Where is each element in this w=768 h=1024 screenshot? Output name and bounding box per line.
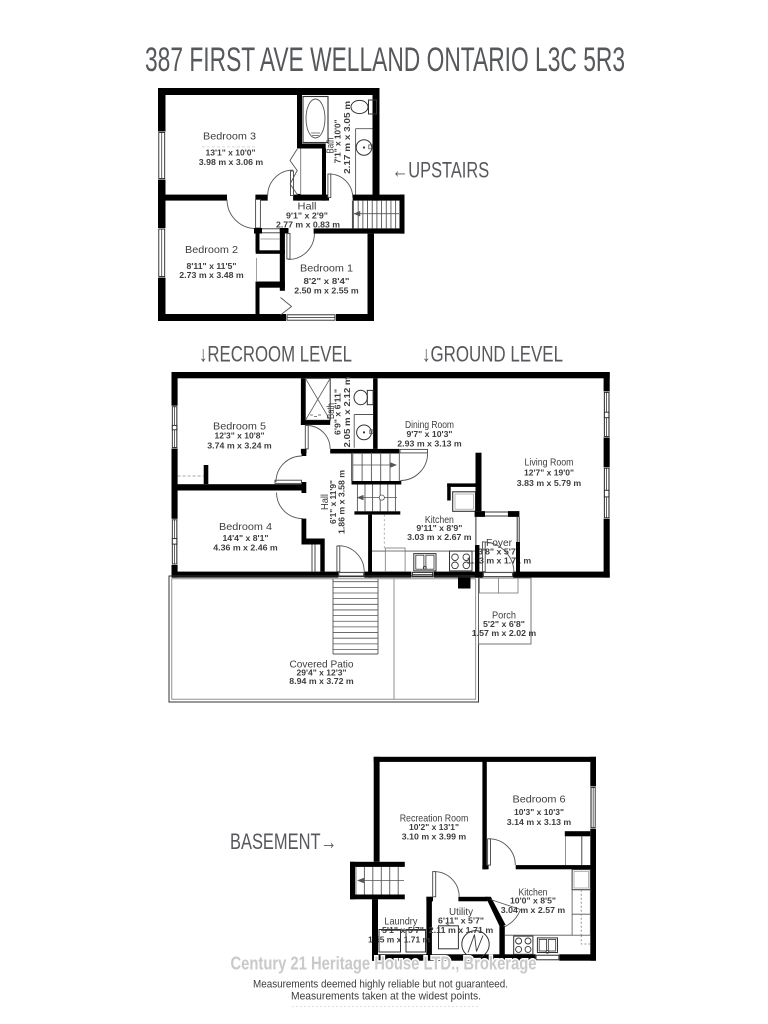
- svg-text:8'2" x 8'4": 8'2" x 8'4": [304, 276, 350, 286]
- svg-text:2.73 m x 3.48 m: 2.73 m x 3.48 m: [179, 270, 243, 280]
- svg-text:Bedroom 2: Bedroom 2: [185, 245, 238, 256]
- svg-text:↓RECROOM LEVEL: ↓RECROOM LEVEL: [199, 341, 352, 366]
- svg-text:3.10 m x 3.99 m: 3.10 m x 3.99 m: [402, 831, 466, 841]
- svg-text:1.86 m x 3.58 m: 1.86 m x 3.58 m: [337, 470, 347, 534]
- svg-text:4.36 m x 2.46 m: 4.36 m x 2.46 m: [213, 543, 277, 553]
- svg-text:3.04 m x 2.57 m: 3.04 m x 2.57 m: [501, 905, 565, 915]
- svg-text:13'1" x 10'0": 13'1" x 10'0": [206, 148, 256, 158]
- svg-text:2.77 m x 0.83 m: 2.77 m x 0.83 m: [276, 220, 340, 230]
- svg-text:2.93 m x 3.13 m: 2.93 m x 3.13 m: [397, 439, 461, 449]
- svg-text:2.50 m x 2.55 m: 2.50 m x 2.55 m: [294, 285, 358, 295]
- svg-text:1.57 m x 2.02 m: 1.57 m x 2.02 m: [472, 628, 536, 638]
- svg-text:12'3" x 10'8": 12'3" x 10'8": [215, 431, 265, 441]
- svg-text:14'4" x 8'1": 14'4" x 8'1": [223, 533, 269, 543]
- svg-text:↓GROUND LEVEL: ↓GROUND LEVEL: [422, 341, 563, 366]
- svg-text:7'1" x 10'0": 7'1" x 10'0": [333, 119, 343, 163]
- svg-text:Bedroom 1: Bedroom 1: [300, 264, 353, 275]
- svg-text:BASEMENT→: BASEMENT→: [230, 829, 337, 854]
- svg-text:Century 21 Heritage House LTD.: Century 21 Heritage House LTD., Brokerag…: [231, 953, 537, 973]
- svg-text:3.14 m x 3.13 m: 3.14 m x 3.13 m: [507, 817, 571, 827]
- svg-text:Measurements deemed highly rel: Measurements deemed highly reliable but …: [253, 979, 508, 991]
- svg-text:Bedroom 4: Bedroom 4: [219, 522, 272, 533]
- svg-text:8.94 m x 3.72 m: 8.94 m x 3.72 m: [289, 676, 353, 686]
- svg-text:2.11 m x 1.71 m: 2.11 m x 1.71 m: [429, 925, 493, 935]
- svg-text:10'0" x 8'5": 10'0" x 8'5": [510, 895, 556, 905]
- svg-text:6'9" x 6'11": 6'9" x 6'11": [333, 389, 343, 435]
- svg-text:387 FIRST AVE WELLAND ONTARIO: 387 FIRST AVE WELLAND ONTARIO L3C 5R3: [145, 41, 625, 79]
- svg-text:3.83 m x 5.79 m: 3.83 m x 5.79 m: [517, 478, 581, 488]
- svg-text:Bedroom 3: Bedroom 3: [203, 132, 256, 143]
- svg-text:3.98 m x 3.06 m: 3.98 m x 3.06 m: [199, 157, 263, 167]
- svg-text:9'7" x 10'3": 9'7" x 10'3": [407, 429, 453, 439]
- svg-text:Bedroom 6: Bedroom 6: [513, 795, 566, 806]
- svg-text:2.17 m x 3.05 m: 2.17 m x 3.05 m: [342, 101, 352, 174]
- svg-text:3.03 m x 2.67 m: 3.03 m x 2.67 m: [407, 532, 471, 542]
- svg-text:Measurements taken at the wide: Measurements taken at the widest points.: [291, 990, 481, 1002]
- svg-text:12'7" x 19'0": 12'7" x 19'0": [524, 467, 574, 477]
- svg-text:3.74 m x 3.24 m: 3.74 m x 3.24 m: [207, 441, 271, 451]
- svg-text:6'11" x 5'7": 6'11" x 5'7": [438, 916, 484, 926]
- svg-text:2.05 m x 2.12 m: 2.05 m x 2.12 m: [342, 377, 352, 448]
- svg-text:←UPSTAIRS: ←UPSTAIRS: [392, 158, 489, 183]
- svg-text:10'3" x 10'3": 10'3" x 10'3": [514, 807, 564, 817]
